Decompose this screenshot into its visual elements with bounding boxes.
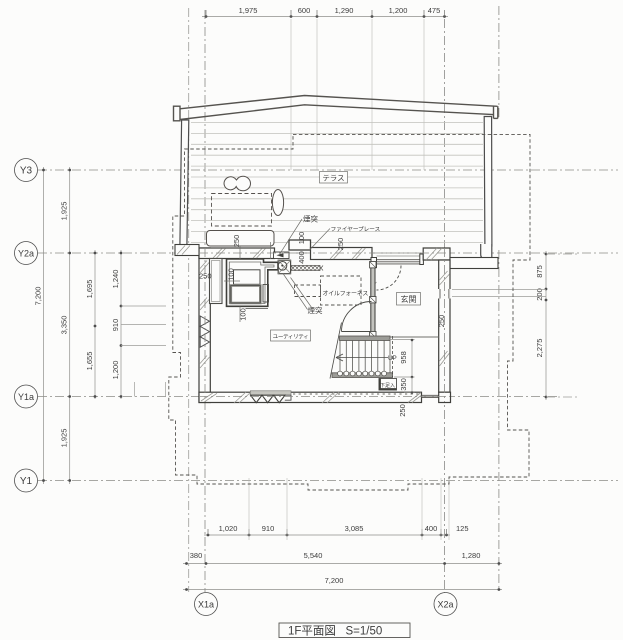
svg-text:1,925: 1,925 xyxy=(60,429,69,448)
svg-text:250: 250 xyxy=(232,235,241,248)
svg-text:3,350: 3,350 xyxy=(60,316,69,335)
svg-text:350: 350 xyxy=(399,378,408,391)
svg-text:2,275: 2,275 xyxy=(535,339,544,358)
svg-text:100: 100 xyxy=(227,268,236,281)
svg-text:400: 400 xyxy=(425,524,438,533)
svg-text:5,540: 5,540 xyxy=(304,551,323,560)
svg-text:1,290: 1,290 xyxy=(335,6,354,15)
svg-text:400: 400 xyxy=(297,251,306,264)
svg-text:250: 250 xyxy=(437,315,446,328)
svg-text:1,975: 1,975 xyxy=(239,6,258,15)
svg-text:1F平面図 S=1/50: 1F平面図 S=1/50 xyxy=(288,625,382,638)
svg-text:1,200: 1,200 xyxy=(389,6,408,15)
svg-text:Y3: Y3 xyxy=(20,166,33,177)
svg-text:X2a: X2a xyxy=(437,600,453,610)
svg-text:475: 475 xyxy=(428,6,441,15)
svg-text:煙突: 煙突 xyxy=(303,214,318,224)
svg-text:1,925: 1,925 xyxy=(60,202,69,221)
svg-text:1,655: 1,655 xyxy=(85,352,94,371)
svg-text:ファイヤープレース: ファイヤープレース xyxy=(331,226,381,233)
svg-text:200: 200 xyxy=(535,288,544,301)
svg-text:380: 380 xyxy=(190,551,203,560)
svg-text:下足入: 下足入 xyxy=(380,383,395,389)
svg-text:600: 600 xyxy=(298,6,311,15)
svg-text:1,020: 1,020 xyxy=(219,524,238,533)
svg-text:3,085: 3,085 xyxy=(345,524,364,533)
svg-text:玄関: 玄関 xyxy=(401,294,417,304)
svg-text:910: 910 xyxy=(111,319,120,332)
svg-text:125: 125 xyxy=(456,524,469,533)
svg-text:250: 250 xyxy=(336,238,345,251)
svg-text:X1a: X1a xyxy=(198,600,214,610)
svg-text:1,200: 1,200 xyxy=(111,361,120,380)
svg-text:Y1: Y1 xyxy=(20,476,33,487)
svg-text:テラス: テラス xyxy=(322,174,344,183)
svg-text:7,200: 7,200 xyxy=(325,576,344,585)
svg-text:ユーティリティ: ユーティリティ xyxy=(273,333,309,340)
svg-text:オイルフォーネス: オイルフォーネス xyxy=(323,290,369,297)
svg-text:958: 958 xyxy=(399,351,408,364)
svg-text:1,240: 1,240 xyxy=(111,270,120,289)
svg-text:250: 250 xyxy=(398,404,407,417)
svg-text:250: 250 xyxy=(199,272,212,281)
svg-text:7,200: 7,200 xyxy=(34,287,43,306)
svg-text:UP: UP xyxy=(388,355,397,362)
svg-text:875: 875 xyxy=(535,265,544,278)
svg-text:910: 910 xyxy=(262,524,275,533)
svg-text:100: 100 xyxy=(297,232,306,245)
svg-text:1,695: 1,695 xyxy=(85,280,94,299)
svg-text:Y2a: Y2a xyxy=(18,249,34,259)
svg-text:煙突: 煙突 xyxy=(308,305,323,315)
svg-text:Y1a: Y1a xyxy=(18,392,34,402)
svg-text:1,280: 1,280 xyxy=(462,551,481,560)
